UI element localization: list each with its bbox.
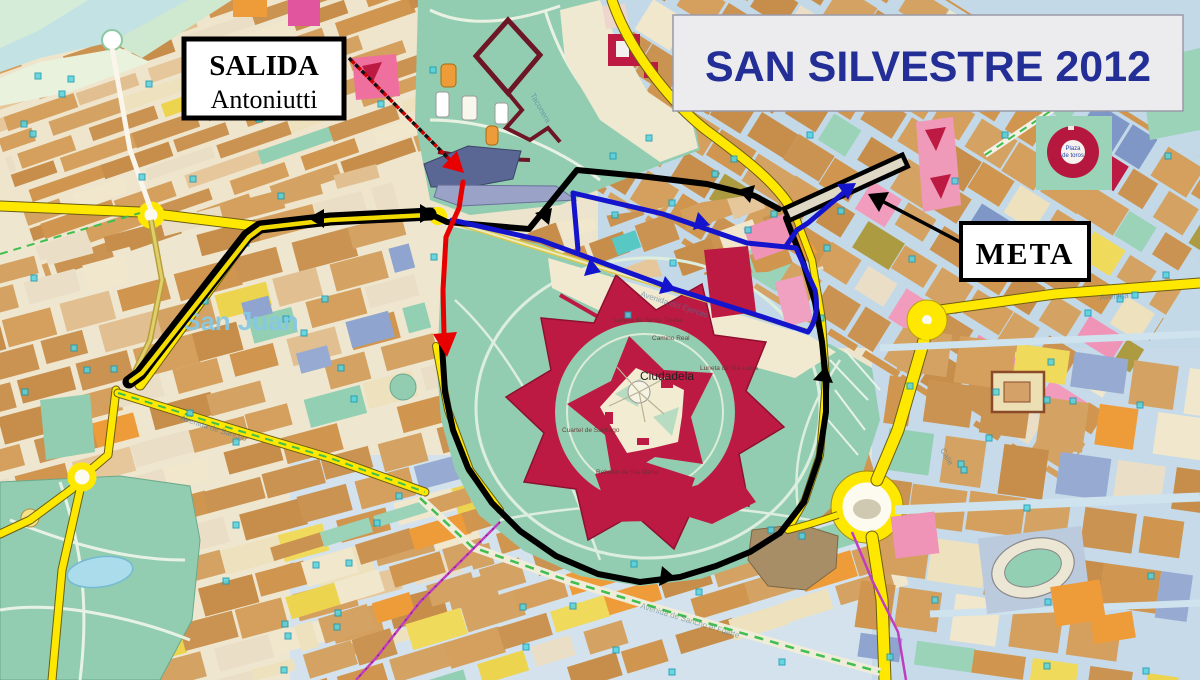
svg-text:SAN SILVESTRE 2012: SAN SILVESTRE 2012	[705, 43, 1151, 91]
svg-text:de toros: de toros	[1062, 153, 1084, 159]
svg-text:Rebellin de Sta Maria: Rebellin de Sta Maria	[596, 469, 659, 476]
svg-text:Antoniutti: Antoniutti	[211, 85, 318, 114]
svg-text:Cuartel de Santiago: Cuartel de Santiago	[562, 427, 620, 434]
svg-text:San Juan: San Juan	[183, 306, 299, 336]
svg-text:META: META	[976, 236, 1075, 271]
svg-text:SALIDA: SALIDA	[209, 50, 319, 82]
svg-text:Luneta de Sta Lucia: Luneta de Sta Lucia	[700, 365, 758, 372]
svg-text:Camino Real: Camino Real	[652, 335, 690, 342]
svg-text:Luneta de Santa Teresa: Luneta de Santa Teresa	[614, 317, 683, 324]
svg-text:Plaza: Plaza	[1065, 146, 1081, 152]
svg-text:Ciudadela: Ciudadela	[640, 369, 694, 383]
